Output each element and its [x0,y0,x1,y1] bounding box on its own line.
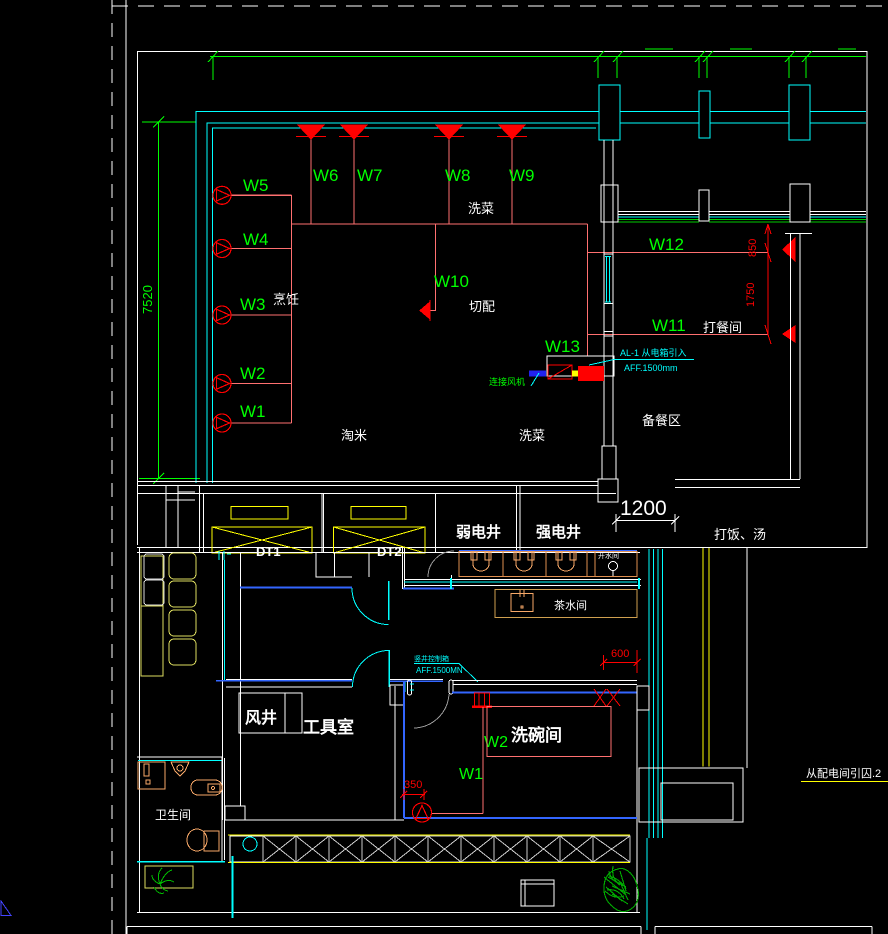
svg-text:AFF.1500MN: AFF.1500MN [416,666,463,675]
svg-text:开水间: 开水间 [598,551,619,560]
svg-text:600: 600 [611,648,629,660]
svg-text:350: 350 [404,779,422,791]
svg-text:工具室: 工具室 [303,717,354,737]
svg-text:茶水间: 茶水间 [554,599,587,612]
svg-text:W2: W2 [484,734,508,751]
svg-text:卫生间: 卫生间 [155,808,191,822]
svg-text:风井: 风井 [245,708,277,727]
svg-text:洗碗间: 洗碗间 [511,725,562,745]
svg-text:从配电间引囚.2: 从配电间引囚.2 [806,766,881,780]
svg-text:竖井控制箱: 竖井控制箱 [414,654,449,663]
svg-text:W1: W1 [459,766,483,783]
